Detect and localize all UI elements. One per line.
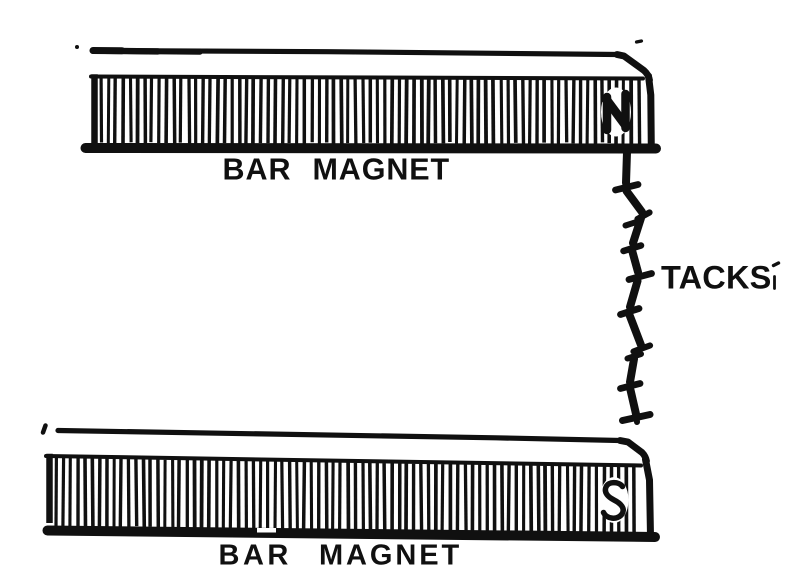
svg-text:BAR: BAR: [223, 153, 292, 187]
svg-text:BAR: BAR: [219, 540, 292, 572]
svg-text:MAGNET: MAGNET: [313, 153, 451, 187]
svg-text:TACKS: TACKS: [661, 260, 772, 296]
svg-text:MAGNET: MAGNET: [319, 540, 462, 572]
